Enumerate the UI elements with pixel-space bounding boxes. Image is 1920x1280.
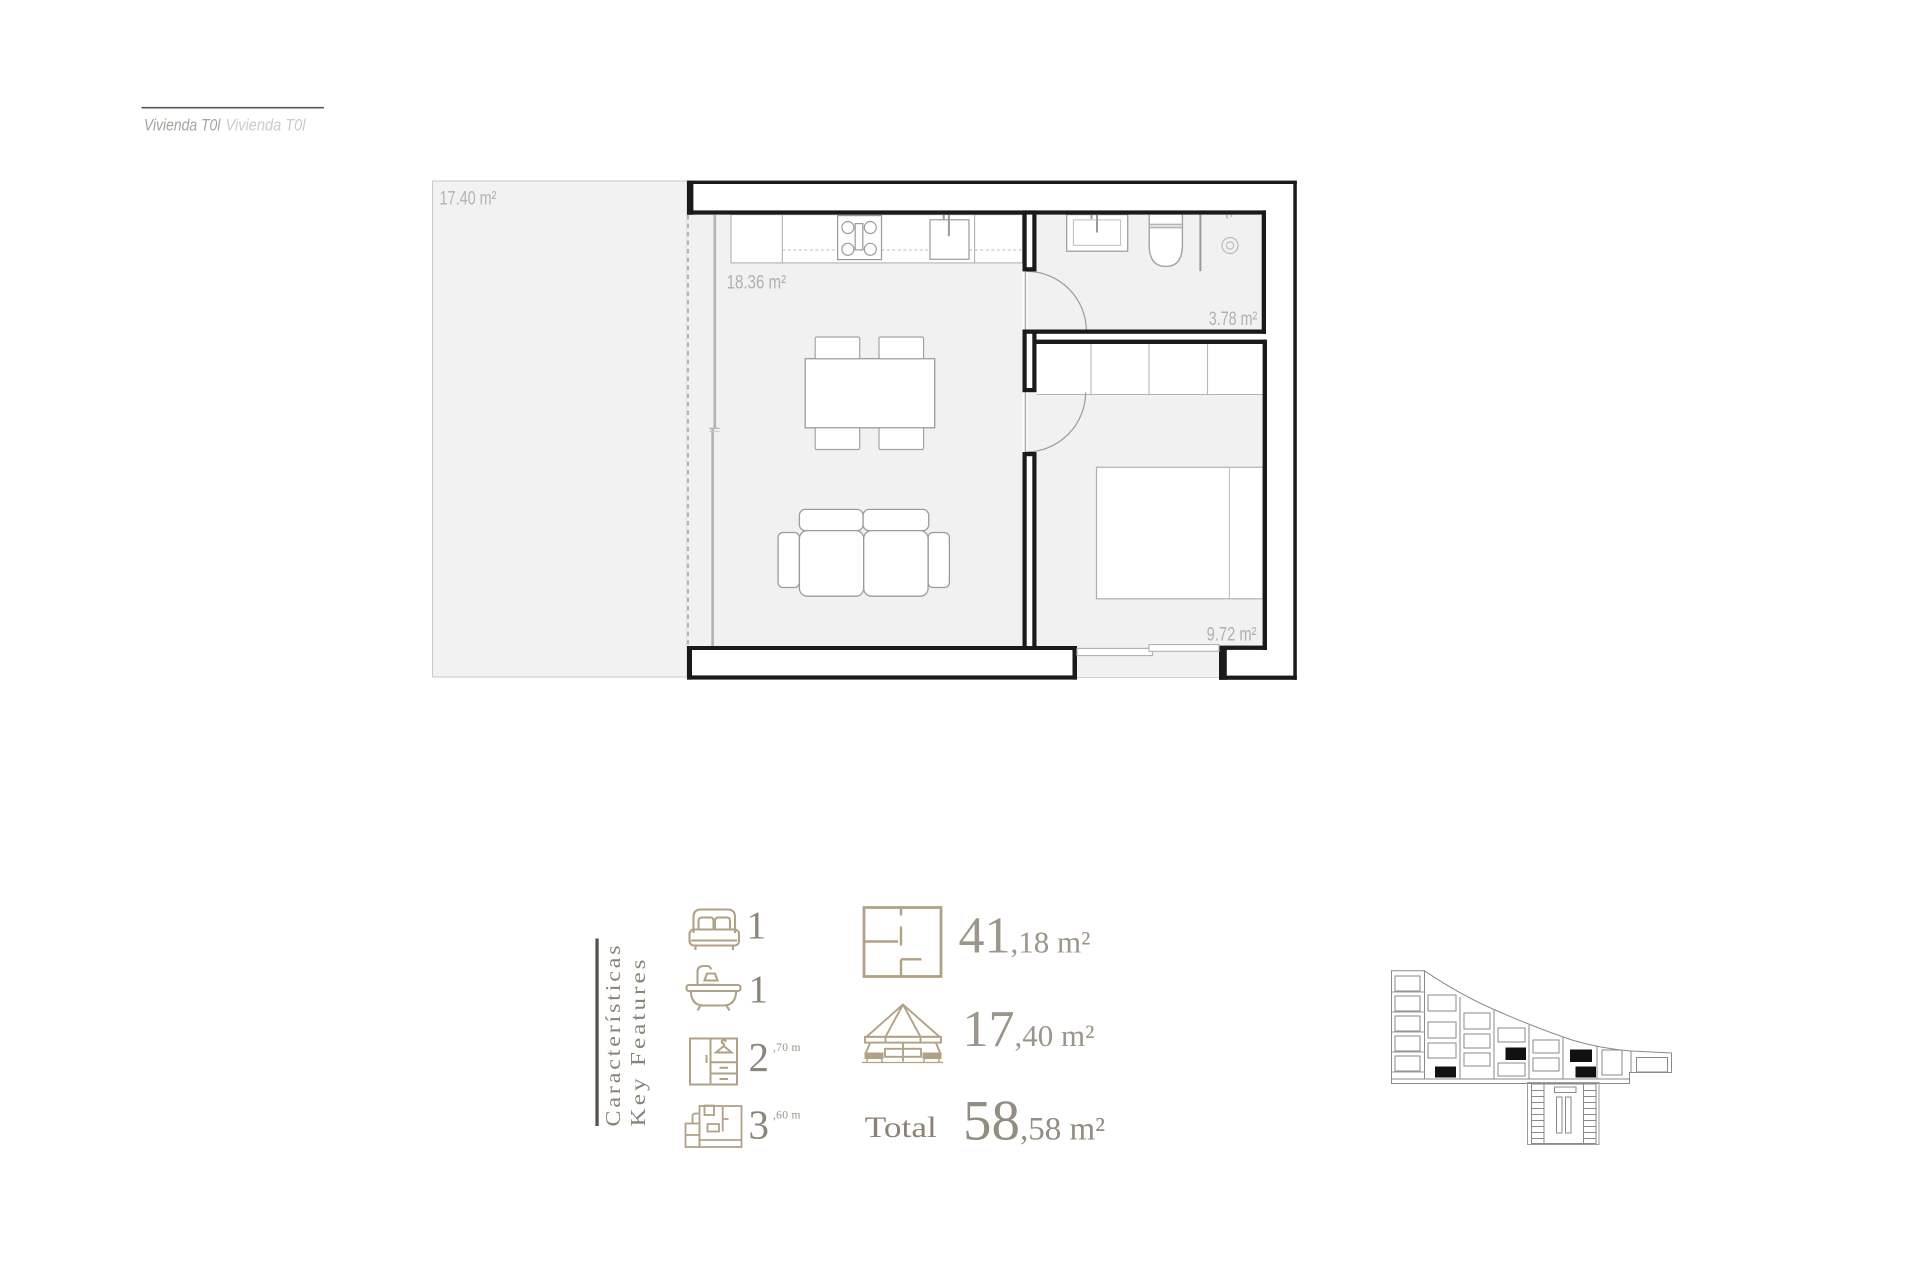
svg-text:Vivienda T0l: Vivienda T0l [226,117,306,135]
svg-text:2: 2 [749,1034,770,1080]
svg-text:Vivienda T0l: Vivienda T0l [144,117,221,135]
svg-text:9.72 m²: 9.72 m² [1207,624,1257,645]
svg-text:1: 1 [747,904,767,947]
svg-text:Características: Características [601,943,625,1127]
svg-text:,70 m: ,70 m [773,1042,801,1054]
svg-text:Total: Total [865,1111,937,1144]
svg-text:3: 3 [749,1102,770,1148]
svg-text:17.40 m²: 17.40 m² [440,189,497,210]
svg-text:,60 m: ,60 m [773,1110,801,1122]
svg-text:1: 1 [749,968,769,1011]
svg-text:3.78 m²: 3.78 m² [1209,309,1258,330]
svg-text:18.36 m²: 18.36 m² [727,273,787,294]
svg-text:Key Features: Key Features [626,957,650,1127]
